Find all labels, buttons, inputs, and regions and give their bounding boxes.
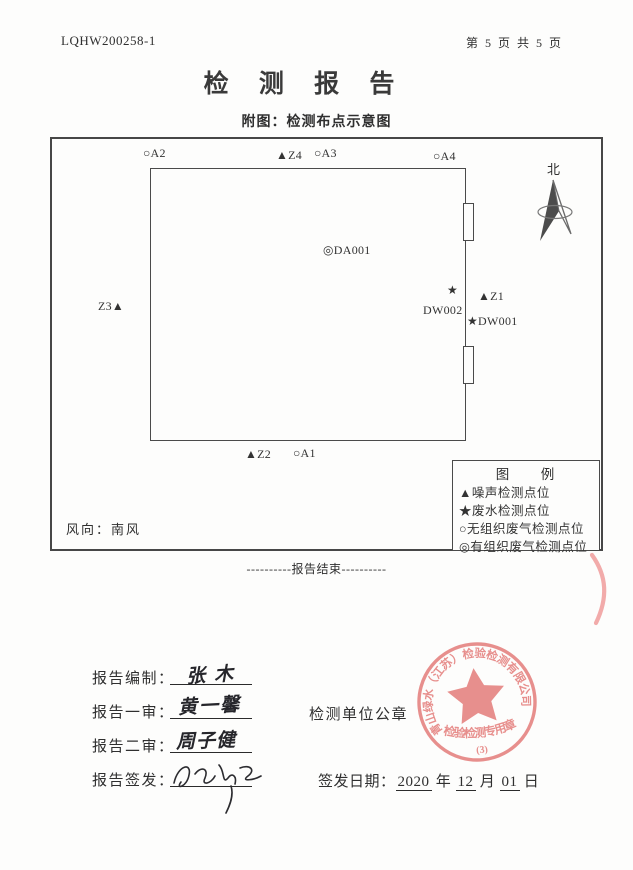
signature-prepared: 张木 xyxy=(185,658,243,689)
official-stamp: 青山绿水（江苏）检验检测有限公司 检验检测专用章 (3) xyxy=(410,638,544,770)
compass-icon xyxy=(533,179,577,247)
issue-date-label: 签发日期： xyxy=(318,774,396,790)
plant-door-upper xyxy=(463,203,474,241)
report-page: LQHW200258-1 第 5 页 共 5 页 检 测 报 告 附图：检测布点… xyxy=(0,0,633,870)
point-z1: ▲Z1 xyxy=(478,289,504,304)
day-unit: 日 xyxy=(524,774,540,790)
issue-date-day: 01 xyxy=(500,774,520,791)
north-label: 北 xyxy=(547,159,560,178)
point-z4: ▲Z4 xyxy=(276,148,302,163)
stamp-number: (3) xyxy=(476,744,489,756)
plant-door-lower xyxy=(463,346,474,384)
point-da001: ◎DA001 xyxy=(323,243,371,258)
label-report-prepared: 报告编制： xyxy=(92,667,175,688)
point-z2: ▲Z2 xyxy=(245,447,271,462)
point-a3: ○A3 xyxy=(314,146,337,161)
figure-caption: 附图：检测布点示意图 xyxy=(0,111,633,131)
point-z3: Z3▲ xyxy=(98,299,124,314)
label-first-review: 报告一审： xyxy=(92,701,175,722)
point-dw001: ★DW001 xyxy=(467,314,518,329)
legend-item-fugitive-gas: ○无组织废气检测点位 xyxy=(459,518,584,537)
label-second-review: 报告二审： xyxy=(92,735,175,756)
month-unit: 月 xyxy=(480,774,496,790)
signature-first-review: 黄一馨 xyxy=(177,689,241,719)
signature-issue-scribble xyxy=(168,757,266,815)
plant-outline xyxy=(150,168,466,441)
legend-item-wastewater: ★废水检测点位 xyxy=(459,500,550,519)
legend-title: 图 例 xyxy=(452,463,598,483)
point-a1: ○A1 xyxy=(293,446,316,461)
page-indicator: 第 5 页 共 5 页 xyxy=(0,34,563,51)
issue-date-year: 2020 xyxy=(396,774,432,791)
issue-date-month: 12 xyxy=(456,774,476,791)
label-report-issue: 报告签发： xyxy=(92,769,175,790)
stamp-caption-text: 检验检测专用章 xyxy=(441,715,519,744)
point-a2: ○A2 xyxy=(143,146,166,161)
report-end-line: ----------报告结束---------- xyxy=(0,560,633,577)
page-title: 检 测 报 告 xyxy=(0,64,610,100)
issue-date-row: 签发日期：2020 年 12 月 01 日 xyxy=(318,770,539,791)
seal-caption: 检测单位公章 xyxy=(309,703,408,724)
stamp-arc-fragment xyxy=(588,550,616,628)
point-a4: ○A4 xyxy=(433,149,456,164)
legend-item-organized-gas: ◎有组织废气检测点位 xyxy=(459,536,587,555)
point-dw002-label: DW002 xyxy=(423,303,463,318)
point-dw002-marker: ★ xyxy=(447,283,458,298)
wind-direction: 风向：南风 xyxy=(66,519,141,538)
signature-second-review: 周子健 xyxy=(176,725,237,754)
svg-text:检验检测专用章: 检验检测专用章 xyxy=(441,715,519,744)
year-unit: 年 xyxy=(436,774,452,790)
legend-item-noise: ▲噪声检测点位 xyxy=(459,482,550,501)
